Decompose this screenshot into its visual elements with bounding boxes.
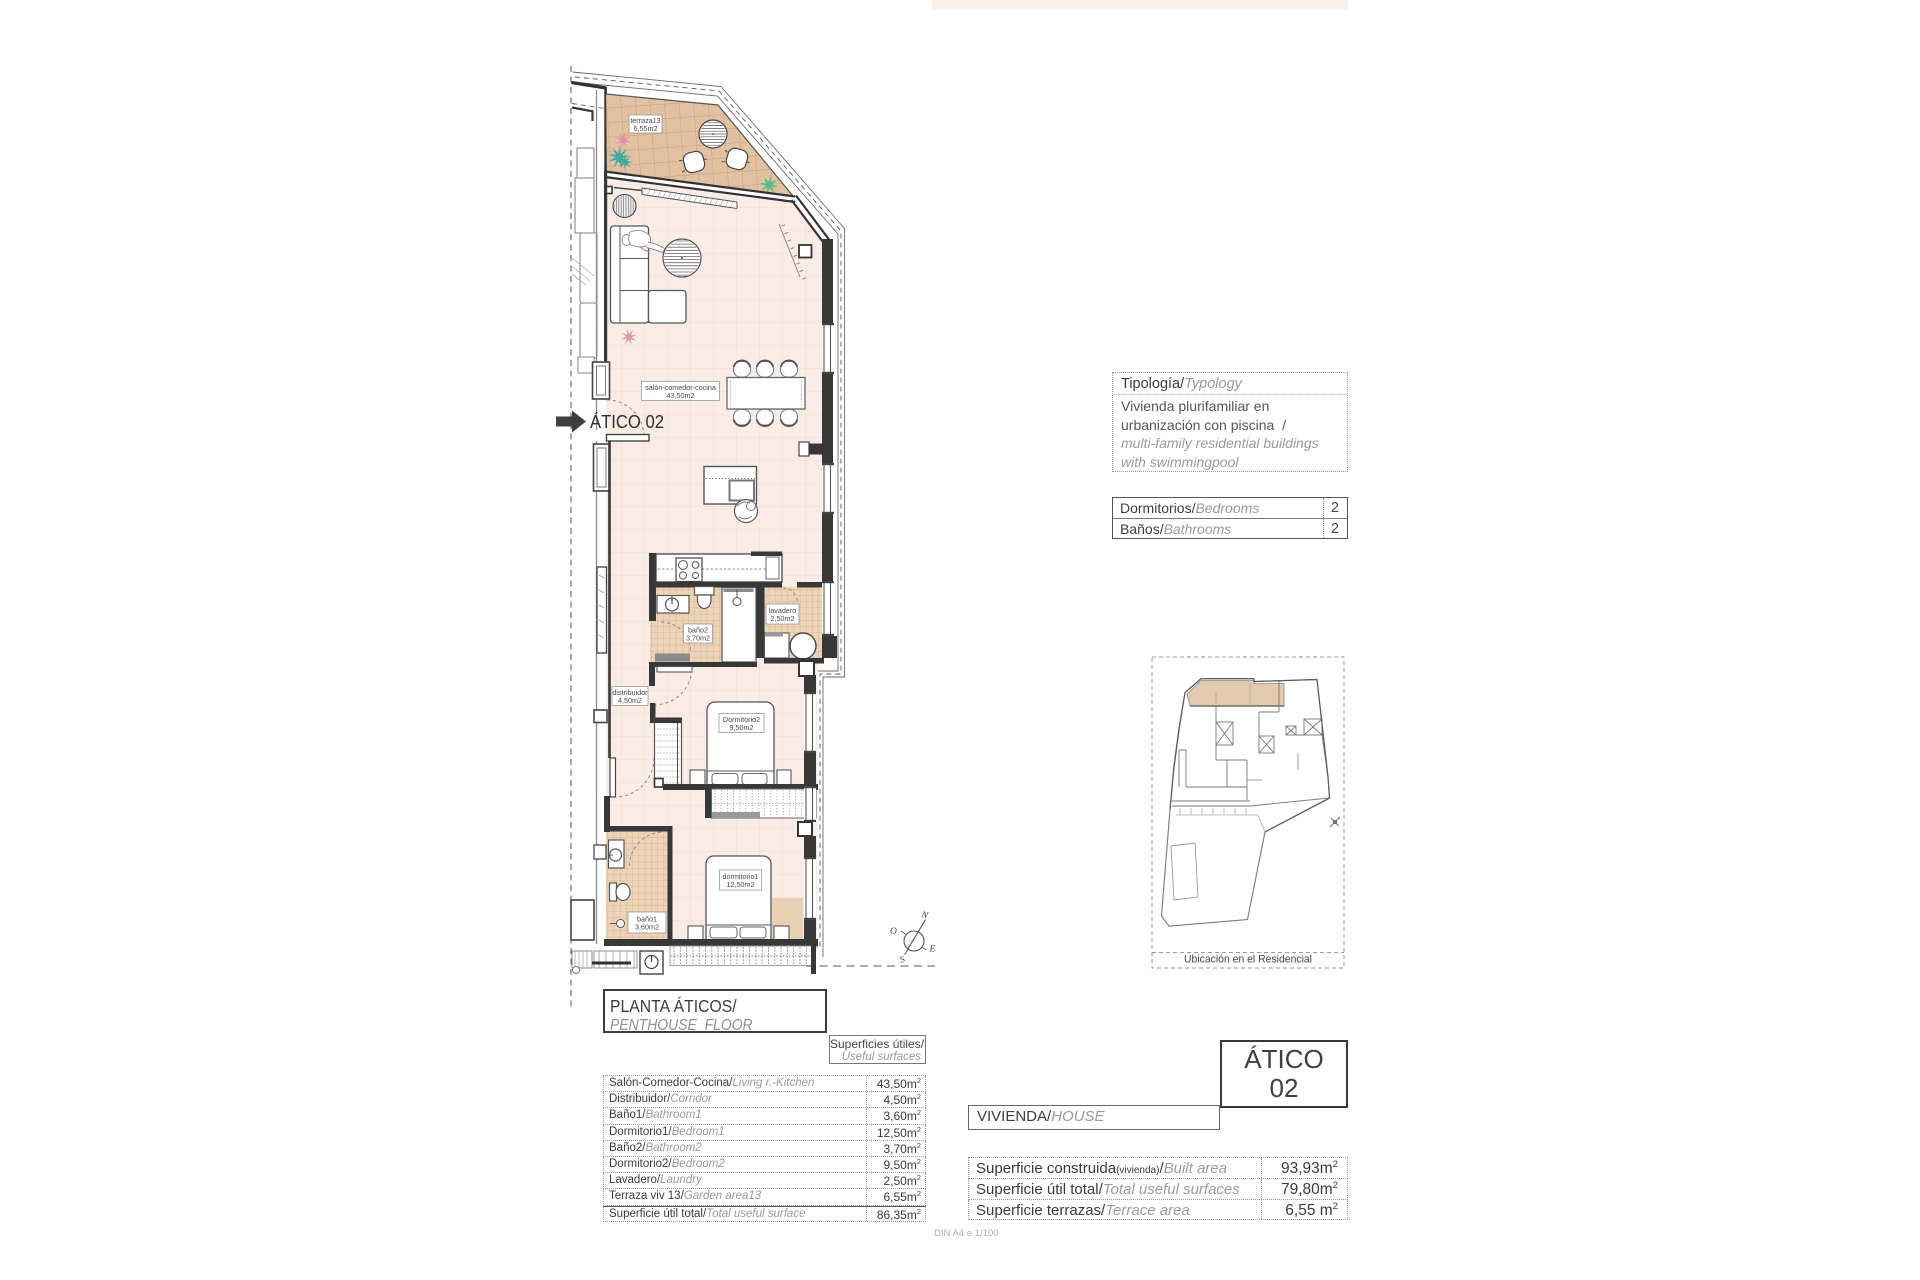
svg-text:Ubicación en el Residencial: Ubicación en el Residencial <box>1184 954 1312 966</box>
svg-text:12,50m2: 12,50m2 <box>727 880 755 889</box>
svg-text:E: E <box>929 945 936 955</box>
svg-text:ÁTICO 02: ÁTICO 02 <box>590 411 664 432</box>
svg-text:2,50m2: 2,50m2 <box>771 614 795 623</box>
svg-text:S: S <box>899 955 907 966</box>
svg-text:DIN A4 e 1/100: DIN A4 e 1/100 <box>934 1228 998 1239</box>
svg-text:O: O <box>890 927 897 937</box>
svg-text:3,70m2: 3,70m2 <box>686 633 710 642</box>
svg-text:3,60m2: 3,60m2 <box>635 922 659 931</box>
svg-text:43,50m2: 43,50m2 <box>667 391 695 400</box>
svg-text:9,50m2: 9,50m2 <box>730 723 754 732</box>
svg-text:4,50m2: 4,50m2 <box>618 696 642 705</box>
svg-text:N: N <box>919 910 929 922</box>
svg-text:6,55m2: 6,55m2 <box>634 124 658 133</box>
